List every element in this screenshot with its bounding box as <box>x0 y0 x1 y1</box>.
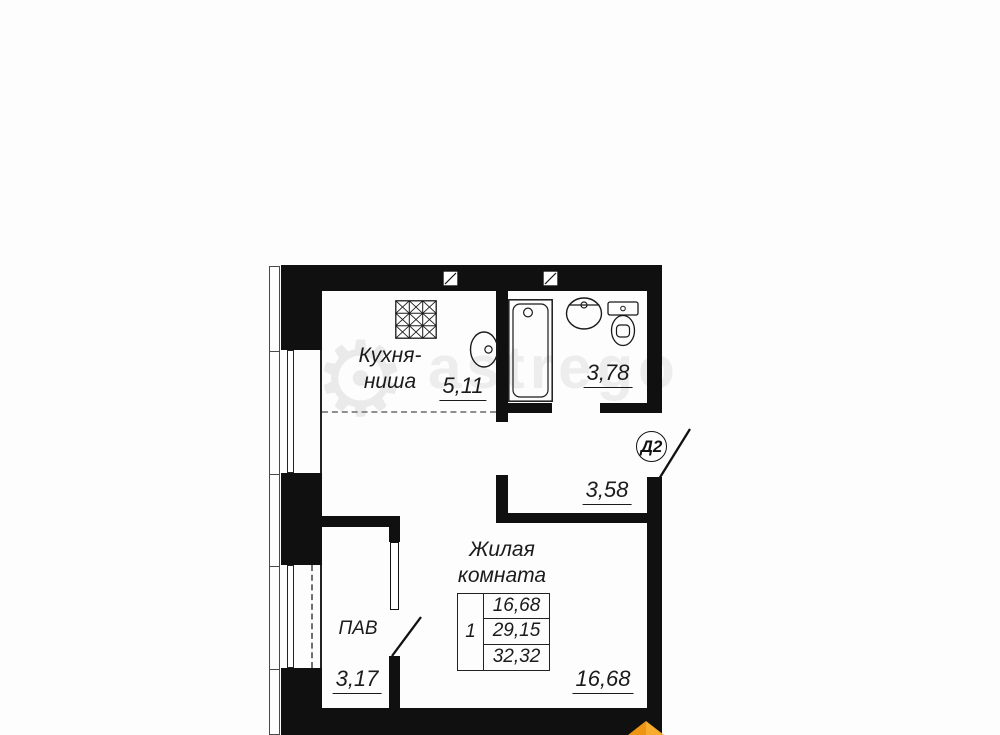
wall-pantry-right-thin <box>390 542 399 610</box>
facade-divider <box>270 351 279 352</box>
pantry-window <box>287 565 294 668</box>
wall-left-middle <box>281 473 322 565</box>
facade-strip <box>269 266 280 735</box>
area-summary-table: 1 16,68 29,15 32,32 <box>457 593 550 671</box>
facade-divider <box>270 669 279 670</box>
total-with-balcony-cell: 32,32 <box>484 645 549 670</box>
kitchen-sink-icon <box>469 330 499 369</box>
pantry-window-inner-edge <box>320 565 322 668</box>
living-area-cell: 16,68 <box>484 594 549 619</box>
wall-pantry-right-upper <box>389 516 400 542</box>
rooms-count-cell: 1 <box>458 594 484 670</box>
wall-top <box>281 265 662 291</box>
wall-bottom <box>281 708 662 735</box>
bathroom-area-value: 3,78 <box>584 360 633 388</box>
living-room-area-value: 16,68 <box>572 666 633 694</box>
kitchen-niche-boundary <box>322 411 496 413</box>
brand-logo-icon <box>624 718 668 735</box>
bathtub-icon <box>508 299 553 402</box>
wall-bathroom-bottom-right <box>600 403 647 413</box>
washbasin-icon <box>565 296 603 330</box>
wall-living-top <box>496 513 647 523</box>
pantry-area-value: 3,17 <box>333 666 382 694</box>
pantry-door-leaf-icon <box>392 617 421 656</box>
floor-plan-canvas: ⚙ astrego <box>0 0 1000 735</box>
living-room-label-line1: Жилая <box>458 537 546 563</box>
living-room-label: Жилая комната <box>458 537 546 589</box>
wall-bathroom-bottom-left <box>496 403 552 413</box>
stove-icon <box>395 300 437 339</box>
kitchen-area-value: 5,11 <box>439 373 486 401</box>
total-area-cell: 29,15 <box>484 619 549 644</box>
pantry-label: ПАВ <box>338 618 377 640</box>
wall-right-upper <box>647 265 662 413</box>
wall-pantry-right-lower <box>389 656 400 708</box>
kitchen-label: Кухня- ниша <box>359 343 422 395</box>
facade-divider <box>270 474 279 475</box>
kitchen-label-line2: ниша <box>359 369 422 395</box>
hall-area-value: 3,58 <box>583 477 632 505</box>
wall-left-upper <box>281 265 322 350</box>
kitchen-label-line1: Кухня- <box>359 343 422 369</box>
wall-right-lower <box>647 477 662 735</box>
living-room-label-line2: комната <box>458 563 546 589</box>
toilet-icon <box>607 301 639 347</box>
unit-number-label: Д2 <box>641 437 663 457</box>
kitchen-window <box>287 350 294 473</box>
kitchen-window-inner-edge <box>320 350 322 473</box>
unit-number-badge: Д2 <box>636 431 667 462</box>
facade-divider <box>270 566 279 567</box>
pantry-window-dashed-line <box>311 565 313 668</box>
